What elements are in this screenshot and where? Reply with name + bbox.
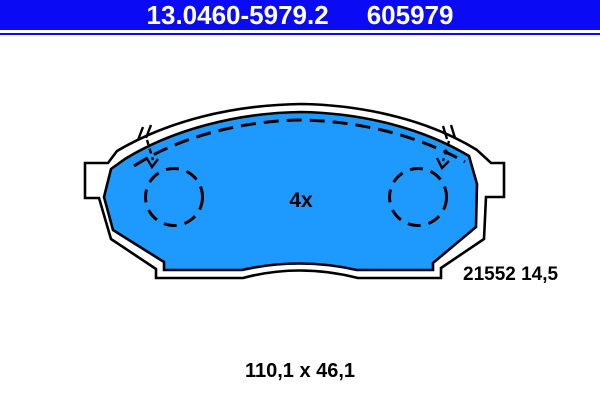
pad-code-label: 21552 14,5 <box>463 264 558 286</box>
brake-pad-datasheet: 13.0460-5979.2 605979 <box>0 0 600 400</box>
quantity-label: 4x <box>272 189 330 213</box>
dimensions-label: 110,1 x 46,1 <box>0 360 600 383</box>
